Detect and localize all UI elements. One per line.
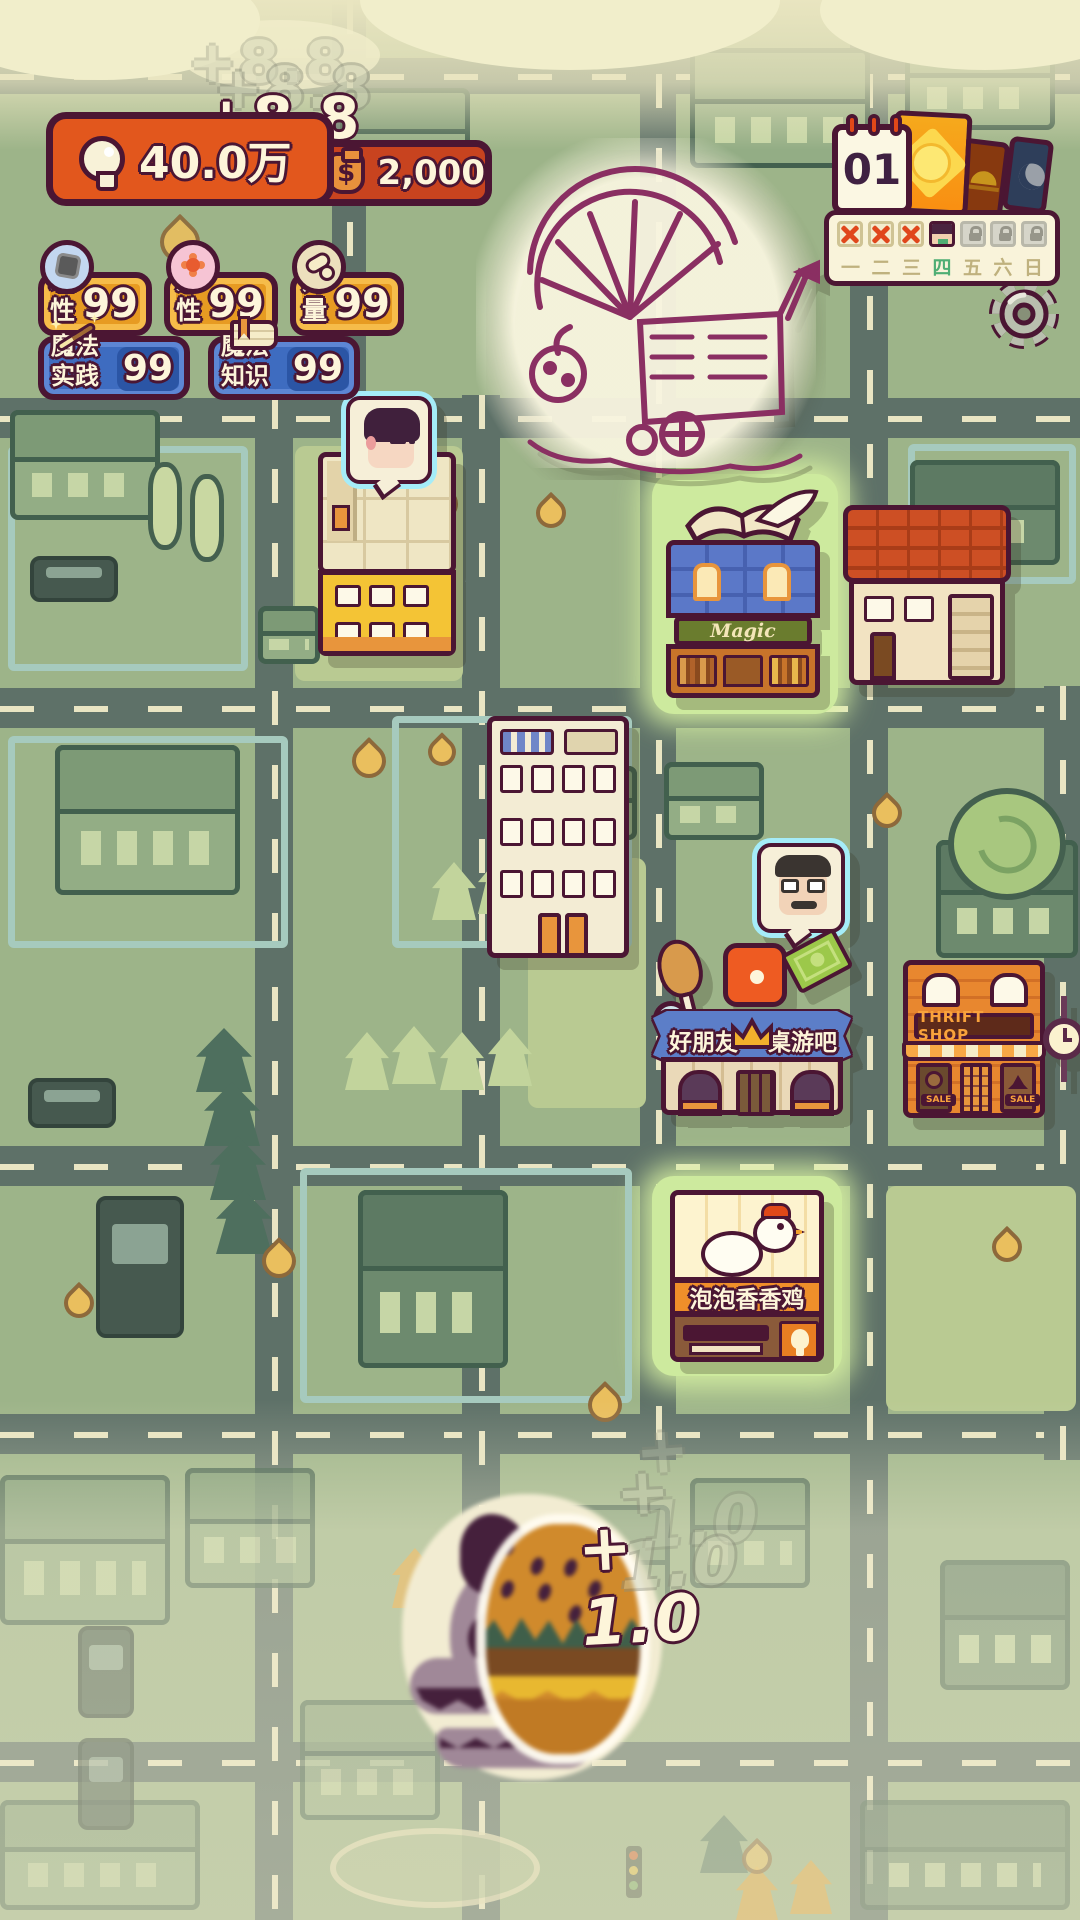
- money-value: 2,000: [377, 153, 485, 193]
- thrift-window-left: SALE: [916, 1063, 952, 1113]
- cafe-storefront: [661, 1057, 843, 1115]
- traffic-light: [626, 1846, 642, 1898]
- rational-head-icon: [40, 240, 94, 294]
- magic-sign-text: Magic: [710, 620, 775, 642]
- cafe-sign-left: 好朋友: [669, 1023, 738, 1057]
- burger-event[interactable]: + 1.0 + 1.0 + 1.0: [402, 1488, 702, 1808]
- week-tracker[interactable]: 一 二 三 四 五 六 日: [824, 210, 1060, 286]
- background-house: [664, 762, 764, 840]
- calendar-page[interactable]: 01: [832, 124, 912, 214]
- dollar-sign: $: [337, 158, 355, 188]
- x-mark-icon: [868, 221, 894, 247]
- calendar-ring: [868, 114, 880, 136]
- magic-stat-value: 99: [117, 347, 179, 391]
- brick-roof: [843, 505, 1011, 583]
- weekday-active: 四: [932, 253, 951, 280]
- pond: [330, 1828, 540, 1908]
- chicken-sign-text: 泡泡香香鸡: [690, 1280, 805, 1314]
- apartment-facade: [318, 570, 456, 656]
- weekday: 五: [963, 253, 982, 280]
- magic-sign-board: Magic: [674, 616, 812, 646]
- drop-marker: [345, 737, 393, 785]
- sale-tag: SALE: [921, 1094, 956, 1106]
- magic-practice-badge[interactable]: 魔法实践 99: [38, 322, 190, 400]
- boardgame-cafe[interactable]: 好朋友 桌游吧: [653, 843, 851, 1115]
- apartment-white-body: [487, 716, 629, 958]
- gain-popup: + 1.0: [576, 1507, 706, 1661]
- drop-marker: [58, 1282, 100, 1324]
- strength-arm-icon: [292, 240, 346, 294]
- dusk-sun-icon: [970, 170, 997, 186]
- apartment-white[interactable]: [487, 716, 629, 958]
- brick-walls: [849, 579, 1005, 685]
- weekday: 日: [1024, 253, 1043, 280]
- magic-roof: [666, 540, 820, 618]
- sketch-doodle-icon: [470, 122, 820, 482]
- apartment-base: [323, 637, 451, 651]
- weekday: 二: [871, 253, 890, 280]
- apartment-doors: [538, 913, 588, 953]
- magic-shop[interactable]: Magic: [666, 488, 820, 698]
- thrift-window-right: SALE: [1000, 1063, 1036, 1113]
- truck: [96, 1196, 184, 1338]
- magic-storefront: [666, 644, 820, 698]
- road: [850, 0, 888, 1920]
- magic-book-icon: [230, 314, 282, 356]
- cafe-owner-avatar: [775, 855, 833, 919]
- thrift-awning: [902, 1041, 1046, 1061]
- insight-bar[interactable]: 40.0万: [46, 112, 334, 206]
- sale-tag: SALE: [1005, 1094, 1040, 1106]
- x-mark-icon: [837, 221, 863, 247]
- tree: [345, 1032, 389, 1090]
- weekday: 一: [841, 253, 860, 280]
- magic-knowledge-badge[interactable]: 魔法知识 99: [208, 322, 360, 400]
- car: [28, 1078, 116, 1128]
- lock-icon: [960, 221, 986, 247]
- weekday: 六: [993, 253, 1012, 280]
- drop-marker: [736, 1838, 778, 1880]
- calendar-ring: [846, 114, 858, 136]
- chicken-top: [670, 1190, 824, 1282]
- background-house: [0, 1475, 170, 1625]
- car: [78, 1626, 134, 1718]
- car: [30, 556, 118, 602]
- background-house: [940, 1560, 1070, 1690]
- brick-house[interactable]: [843, 505, 1011, 685]
- background-house: [860, 1800, 1070, 1910]
- background-house: [185, 1468, 315, 1588]
- sketch-building[interactable]: [470, 122, 820, 482]
- week-slots: [837, 221, 1047, 247]
- drop-marker: [530, 492, 572, 534]
- tree: [148, 462, 182, 550]
- tree: [700, 1815, 748, 1873]
- chicken-shop[interactable]: 泡泡香香鸡: [670, 1190, 824, 1362]
- weekday-labels: 一 二 三 四 五 六 日: [837, 253, 1047, 280]
- tree: [392, 1026, 436, 1084]
- moon-icon: [1017, 162, 1046, 191]
- game-screen: { "colors":{"accent_orange":"#e2571d","p…: [0, 0, 1080, 1920]
- crown-icon: [729, 1015, 775, 1053]
- chicken-banner: 泡泡香香鸡: [670, 1278, 824, 1316]
- cafe-banner: 好朋友 桌游吧: [653, 1011, 851, 1061]
- apartment-yellow[interactable]: [318, 396, 456, 656]
- street-clock: [1041, 996, 1080, 1082]
- lightbulb-icon: [79, 136, 125, 182]
- thrift-sign-board: THRIFT SHOP: [914, 1013, 1034, 1039]
- thrift-door: [960, 1063, 992, 1115]
- stat-value: 99: [334, 282, 390, 326]
- weekday: 三: [902, 253, 921, 280]
- background-house: [55, 745, 240, 895]
- tenant-speech-bubble[interactable]: [346, 396, 432, 484]
- chicken-mascot: [701, 1209, 805, 1279]
- emotion-head-icon: [166, 240, 220, 294]
- lock-icon: [990, 221, 1016, 247]
- magic-wand-icon: [48, 316, 102, 360]
- lock-icon: [1021, 221, 1047, 247]
- gear-icon: [984, 274, 1064, 354]
- background-house: [10, 410, 160, 520]
- magic-stat-value: 99: [287, 347, 349, 391]
- avatar: [929, 221, 955, 247]
- tenant-avatar: [364, 408, 420, 470]
- cafe-owner-speech-bubble[interactable]: [757, 843, 845, 933]
- calendar-ring: [890, 114, 902, 136]
- thrift-body: THRIFT SHOP SALE SALE: [903, 960, 1045, 1118]
- x-mark-icon: [898, 221, 924, 247]
- cloud: [180, 20, 380, 90]
- insight-value: 40.0万: [139, 127, 292, 191]
- tree: [190, 474, 224, 562]
- cafe-sign-right: 桌游吧: [768, 1023, 837, 1057]
- tree: [790, 1860, 832, 1914]
- tree: [196, 1028, 252, 1092]
- thrift-sign-text: THRIFT SHOP: [918, 1008, 1030, 1044]
- car: [78, 1738, 134, 1830]
- road: [0, 1414, 1080, 1454]
- topiary-bush: [948, 788, 1066, 900]
- background-house: [258, 606, 320, 664]
- lawn: [886, 1186, 1076, 1411]
- chicken-counter: [670, 1312, 824, 1362]
- fried-chicken-poster: [779, 1321, 819, 1359]
- dice-icon: [723, 943, 787, 1007]
- settings-button[interactable]: [984, 274, 1064, 354]
- awning: [500, 729, 554, 755]
- background-house: [358, 1190, 508, 1368]
- calendar-day-number: 01: [843, 145, 901, 194]
- thrift-shop[interactable]: THRIFT SHOP SALE SALE: [903, 960, 1045, 1118]
